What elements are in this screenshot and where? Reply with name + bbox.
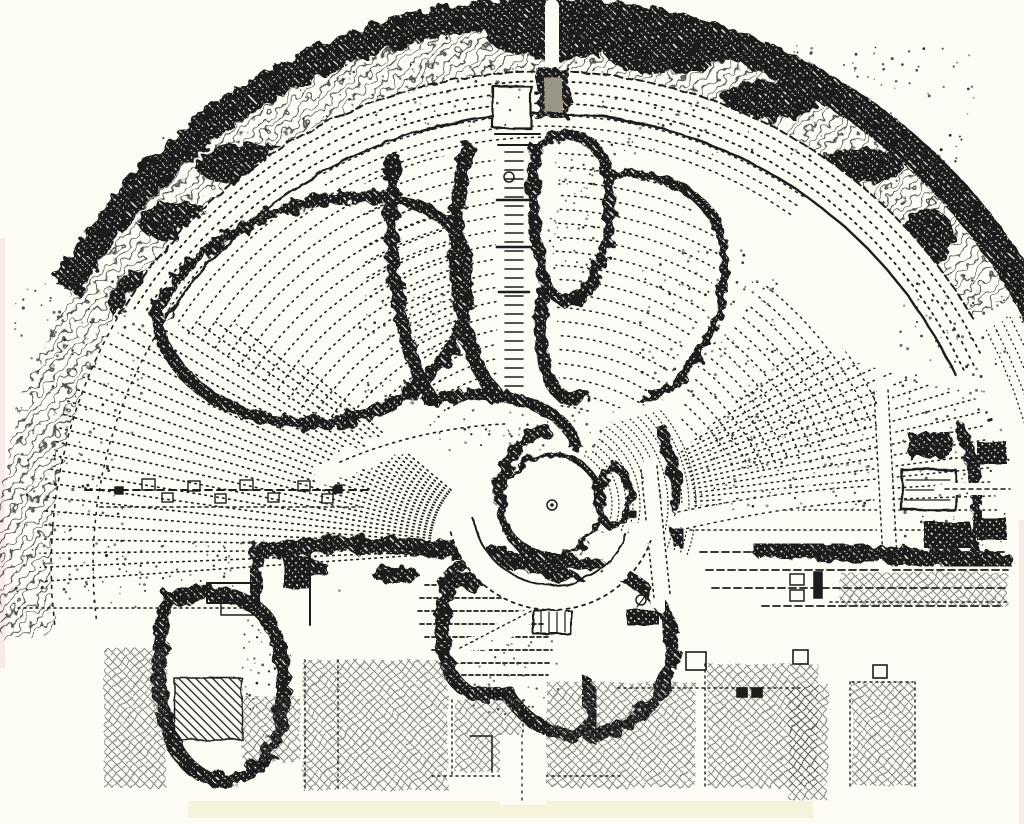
site-plan-drawing	[0, 0, 1024, 824]
site-plan-svg	[0, 0, 1024, 824]
